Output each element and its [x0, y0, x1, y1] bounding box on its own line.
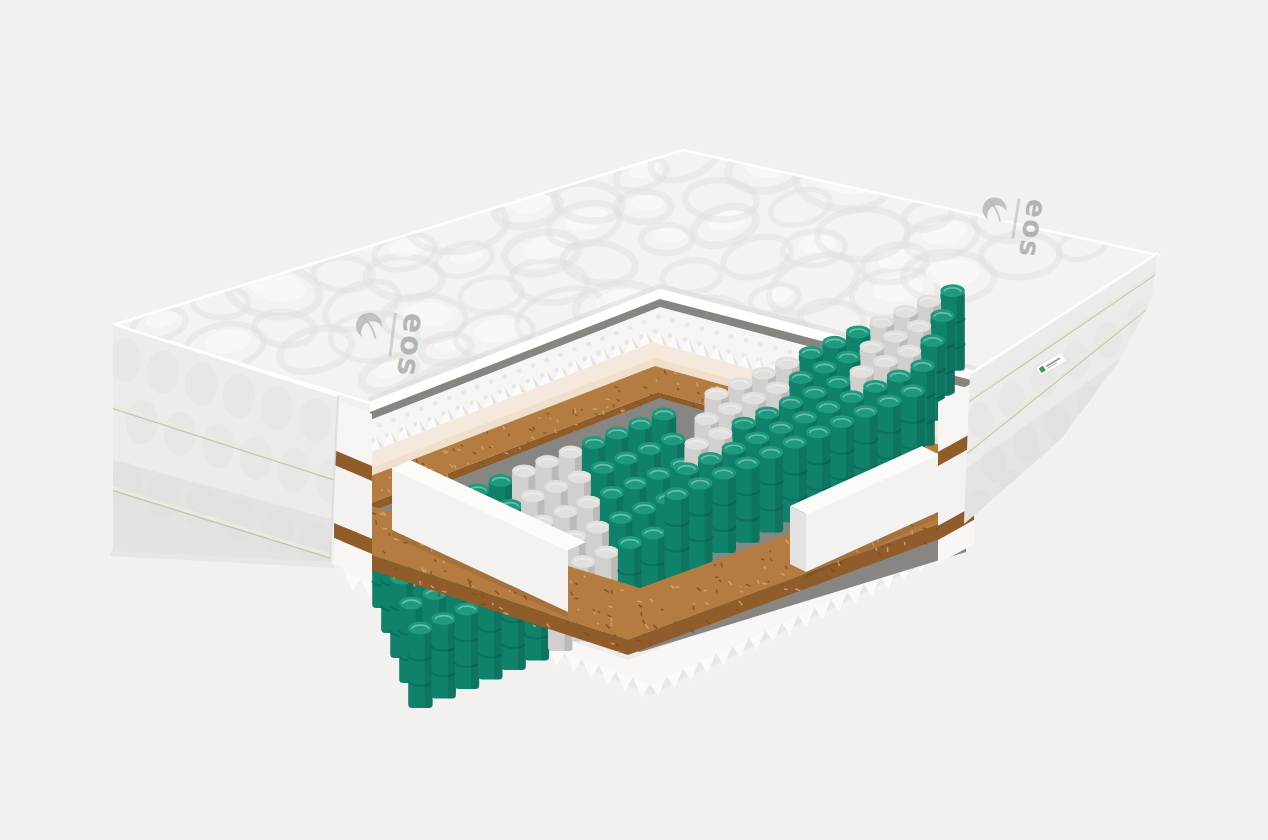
mattress-cutaway-render: eoseos [0, 0, 1268, 840]
product-image-stage: eoseos [0, 0, 1268, 840]
